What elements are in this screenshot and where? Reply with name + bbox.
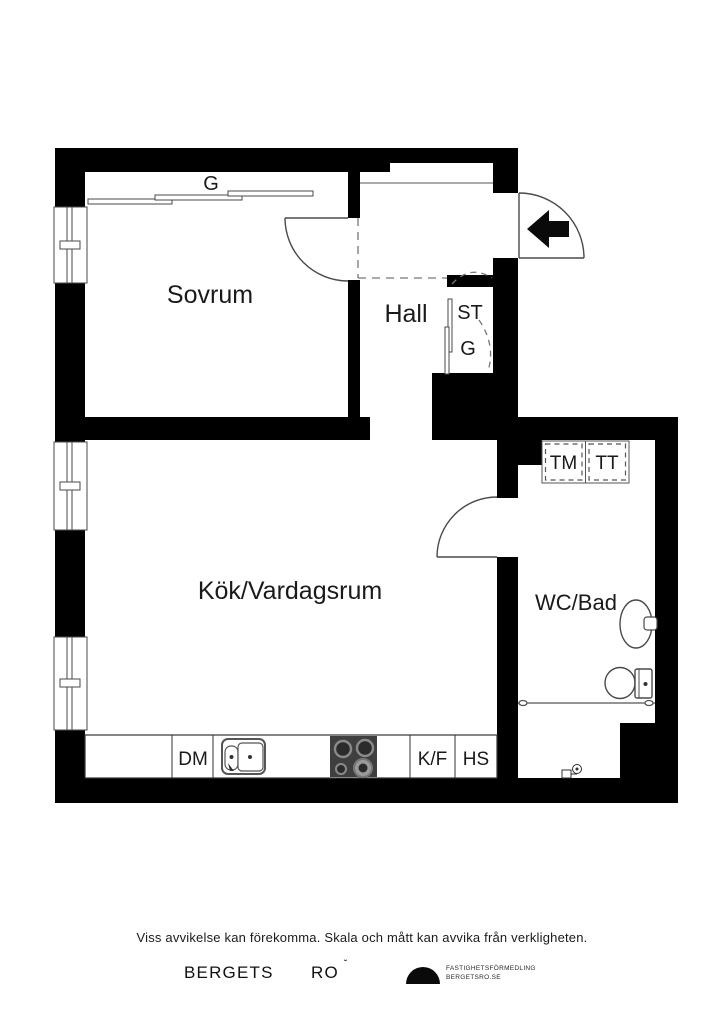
shower-rod xyxy=(518,701,655,706)
wall-bedroom-kitchen-divider xyxy=(55,417,370,440)
wall-top-right xyxy=(432,417,678,440)
wall-wc-shaft-block xyxy=(518,440,542,465)
wall-closet-bottom-block xyxy=(432,373,493,417)
floor-plan: Sovrum G Hall ST G Kök/Vardagsrum WC/Bad… xyxy=(0,0,724,1024)
hall-closet-doors xyxy=(445,299,452,374)
kitchen-window-2 xyxy=(54,637,87,730)
bedroom-wardrobe-doors xyxy=(88,191,313,204)
wall-bottom xyxy=(55,778,678,803)
wall-kitchen-wc-upper xyxy=(497,440,518,498)
wall-hall-right xyxy=(493,258,518,440)
appliance-label-tt: TT xyxy=(595,453,619,474)
toilet xyxy=(605,668,652,699)
appliance-label-tm: TM xyxy=(550,453,577,474)
wall-wc-step-notch xyxy=(620,723,655,778)
kitchen-window-1 xyxy=(54,442,87,530)
floor-drain-icon xyxy=(562,765,582,779)
bathroom-door xyxy=(437,497,497,557)
room-label-bedroom: Sovrum xyxy=(167,281,253,309)
wall-left-corner xyxy=(55,148,85,207)
bedroom-window xyxy=(54,207,87,283)
appliance-label-dm: DM xyxy=(178,749,208,770)
appliance-label-hs: HS xyxy=(463,749,489,770)
wall-left-mid2 xyxy=(55,530,85,637)
floorplan-page: Sovrum G Hall ST G Kök/Vardagsrum WC/Bad… xyxy=(0,0,724,1024)
entry-arrow-icon xyxy=(527,210,569,248)
washbasin xyxy=(620,600,657,648)
closet-label-st: ST xyxy=(457,302,483,324)
hall-wardrobe-swing-dash xyxy=(479,320,491,371)
wall-bedroom-hall-upper xyxy=(348,163,360,218)
wardrobe-label-hall: G xyxy=(460,338,476,360)
wall-closet-top xyxy=(447,275,493,287)
wall-bedroom-hall-lower xyxy=(348,280,360,417)
appliance-label-kf: K/F xyxy=(418,749,448,770)
bedroom-door xyxy=(285,218,348,281)
dashed-guides xyxy=(87,218,497,757)
plan-labels: Sovrum G Hall ST G Kök/Vardagsrum WC/Bad… xyxy=(167,173,619,770)
room-label-kitchen: Kök/Vardagsrum xyxy=(198,577,382,605)
wardrobe-label-bedroom: G xyxy=(203,173,219,195)
wall-right xyxy=(655,440,678,803)
kitchen-sink xyxy=(222,739,265,774)
wall-top-hall-thin xyxy=(390,148,493,163)
wall-kitchen-wc-lower xyxy=(497,557,518,778)
stove-icon xyxy=(330,736,377,777)
room-label-hall: Hall xyxy=(384,300,427,328)
wall-top-left xyxy=(55,148,390,172)
wall-entry-top-block xyxy=(493,148,518,193)
room-label-bathroom: WC/Bad xyxy=(535,590,617,615)
